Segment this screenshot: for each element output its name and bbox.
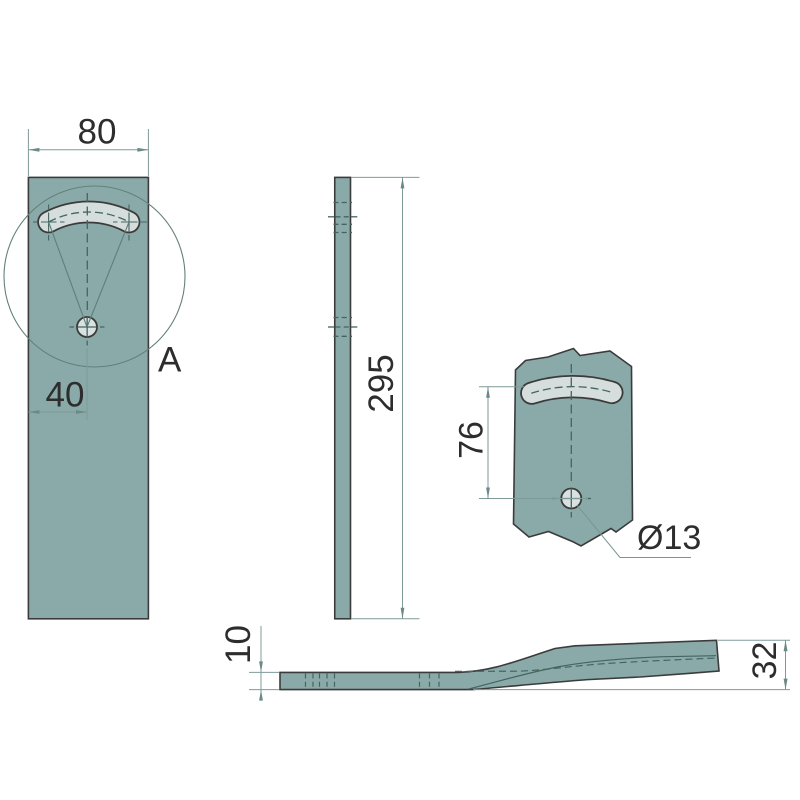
svg-text:10: 10 [219,625,258,664]
svg-text:Ø13: Ø13 [637,519,701,557]
svg-text:A: A [158,341,182,380]
svg-text:76: 76 [452,421,490,459]
svg-text:40: 40 [46,376,85,415]
svg-text:295: 295 [362,354,401,412]
svg-text:80: 80 [78,113,117,152]
svg-text:32: 32 [746,642,784,680]
